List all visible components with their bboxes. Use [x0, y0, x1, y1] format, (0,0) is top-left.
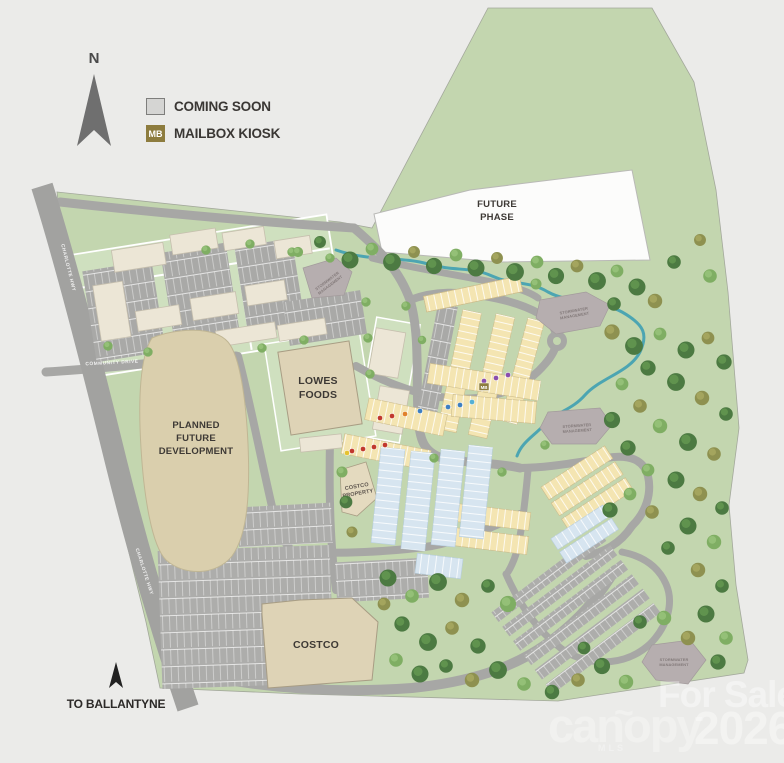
- tree-icon: [366, 243, 379, 256]
- tree-icon: [429, 573, 447, 591]
- mailbox-kiosk-swatch: MB: [146, 125, 165, 142]
- tree-icon: [645, 505, 659, 519]
- north-arrow: N: [66, 50, 122, 154]
- tree-icon: [201, 245, 210, 254]
- tree-icon: [346, 526, 357, 537]
- unit-status-dot: [377, 415, 382, 420]
- site-plan-image: CHARLOTTE HWY CHARLOTTE HWY COMMUNITY DR…: [0, 0, 784, 763]
- tree-icon: [691, 563, 705, 577]
- unit-status-dot: [493, 375, 498, 380]
- tree-icon: [383, 253, 401, 271]
- tree-icon: [619, 675, 633, 689]
- tree-icon: [517, 677, 531, 691]
- tree-icon: [439, 659, 453, 673]
- tree-icon: [668, 472, 685, 489]
- tree-icon: [661, 541, 675, 555]
- unit-status-dot: [389, 413, 394, 418]
- tree-icon: [245, 239, 254, 248]
- tree-icon: [616, 378, 629, 391]
- unit-status-dot: [349, 448, 354, 453]
- tree-icon: [314, 236, 326, 248]
- tree-icon: [678, 342, 695, 359]
- tree-icon: [530, 278, 541, 289]
- tree-icon: [380, 570, 397, 587]
- tree-icon: [470, 638, 485, 653]
- tree-icon: [624, 488, 637, 501]
- tree-icon: [103, 341, 112, 350]
- tree-icon: [419, 633, 437, 651]
- tree-icon: [545, 685, 559, 699]
- tree-icon: [620, 440, 635, 455]
- costco-building: COSTCO: [262, 598, 378, 688]
- unit-status-dot: [469, 399, 474, 404]
- tree-icon: [703, 269, 717, 283]
- legend-row-mailbox: MB MAILBOX KIOSK: [146, 125, 280, 142]
- tree-icon: [429, 453, 438, 462]
- mb-kiosk-marker: MB: [479, 383, 489, 391]
- tree-icon: [607, 297, 621, 311]
- unit-status-dot: [417, 408, 422, 413]
- tree-icon: [602, 502, 617, 517]
- unit-status-dot: [360, 446, 365, 451]
- tree-icon: [363, 333, 372, 342]
- tree-icon: [336, 466, 347, 477]
- tree-icon: [640, 360, 655, 375]
- to-ballantyne-label: TO BALLANTYNE: [48, 697, 184, 711]
- mailbox-kiosk-label: MAILBOX KIOSK: [174, 126, 280, 141]
- planned-label-3: DEVELOPMENT: [159, 446, 234, 457]
- tree-icon: [465, 673, 479, 687]
- tree-icon: [654, 328, 667, 341]
- tree-icon: [716, 354, 731, 369]
- tree-icon: [531, 256, 544, 269]
- future-phase-label-1: FUTURE: [477, 199, 517, 210]
- tree-icon: [657, 611, 671, 625]
- lowes-label-1: LOWES: [298, 375, 338, 387]
- unit-status-dot: [382, 442, 387, 447]
- tree-icon: [571, 673, 585, 687]
- tree-icon: [681, 631, 695, 645]
- tree-icon: [633, 399, 647, 413]
- tree-icon: [340, 496, 353, 509]
- tree-icon: [408, 246, 420, 258]
- tree-icon: [361, 297, 370, 306]
- tree-icon: [506, 263, 524, 281]
- tree-icon: [667, 255, 681, 269]
- future-phase-label-2: PHASE: [480, 212, 514, 223]
- unit-status-dot: [445, 404, 450, 409]
- tree-icon: [325, 253, 334, 262]
- tree-icon: [299, 335, 308, 344]
- tree-icon: [412, 666, 429, 683]
- unit-status-dot: [457, 402, 462, 407]
- tree-icon: [450, 249, 463, 262]
- tree-icon: [293, 247, 303, 257]
- tree-icon: [719, 631, 733, 645]
- tree-icon: [653, 419, 667, 433]
- coming-soon-swatch: [146, 98, 165, 115]
- tree-icon: [500, 596, 516, 612]
- tree-icon: [707, 535, 721, 549]
- tree-icon: [418, 336, 427, 345]
- tree-icon: [702, 332, 715, 345]
- svg-text:MB: MB: [481, 385, 488, 390]
- tree-icon: [588, 272, 606, 290]
- tree-icon: [143, 347, 152, 356]
- tree-icon: [445, 621, 459, 635]
- tree-icon: [604, 324, 619, 339]
- tree-icon: [707, 447, 721, 461]
- tree-icon: [426, 258, 442, 274]
- tree-icon: [667, 373, 685, 391]
- tree-icon: [642, 464, 655, 477]
- tree-icon: [257, 343, 266, 352]
- costco-label: COSTCO: [293, 639, 339, 651]
- coming-soon-label: COMING SOON: [174, 99, 271, 114]
- legend: COMING SOON MB MAILBOX KIOSK: [146, 98, 280, 142]
- planned-label-1: PLANNED: [172, 420, 219, 431]
- tree-icon: [540, 440, 549, 449]
- tree-icon: [497, 467, 506, 476]
- svg-text:MANAGEMENT: MANAGEMENT: [659, 662, 689, 667]
- watermark-mls: MLS: [598, 744, 626, 753]
- tree-icon: [401, 301, 410, 310]
- tree-icon: [405, 589, 419, 603]
- tree-icon: [481, 579, 495, 593]
- tree-icon: [548, 268, 564, 284]
- tree-icon: [611, 265, 624, 278]
- tree-icon: [715, 501, 729, 515]
- tree-icon: [604, 412, 620, 428]
- tree-icon: [629, 279, 646, 296]
- tree-icon: [468, 260, 485, 277]
- tree-icon: [633, 615, 647, 629]
- lowes-foods-building: LOWES FOODS: [278, 341, 362, 435]
- tree-icon: [679, 433, 697, 451]
- tree-icon: [491, 252, 503, 264]
- lowes-label-2: FOODS: [299, 389, 337, 401]
- to-ballantyne-arrow-icon: [107, 662, 125, 690]
- unit-status-dot: [402, 411, 407, 416]
- unit-status-dot: [344, 450, 349, 455]
- watermark-canopy-tilde: ~: [614, 694, 634, 733]
- unit-status-dot: [505, 372, 510, 377]
- tree-icon: [365, 369, 374, 378]
- tree-icon: [680, 518, 697, 535]
- planned-future-development-area: PLANNED FUTURE DEVELOPMENT: [140, 330, 249, 571]
- tree-icon: [378, 598, 391, 611]
- north-label: N: [89, 50, 100, 67]
- tree-icon: [342, 252, 359, 269]
- tree-icon: [489, 661, 507, 679]
- tree-icon: [719, 407, 733, 421]
- tree-icon: [578, 642, 591, 655]
- watermark-year: 2026: [694, 705, 784, 751]
- tree-icon: [394, 616, 409, 631]
- tree-icon: [710, 654, 725, 669]
- tree-icon: [571, 260, 584, 273]
- unit-status-dot: [371, 444, 376, 449]
- tree-icon: [693, 487, 707, 501]
- to-ballantyne: TO BALLANTYNE: [48, 662, 184, 711]
- tree-icon: [694, 234, 706, 246]
- tree-icon: [698, 606, 715, 623]
- planned-label-2: FUTURE: [176, 433, 216, 444]
- tree-icon: [715, 579, 729, 593]
- tree-icon: [389, 653, 403, 667]
- tree-icon: [695, 391, 709, 405]
- tree-icon: [455, 593, 469, 607]
- tree-icon: [594, 658, 610, 674]
- tree-icon: [625, 337, 643, 355]
- legend-row-coming-soon: COMING SOON: [146, 98, 280, 115]
- tree-icon: [648, 294, 662, 308]
